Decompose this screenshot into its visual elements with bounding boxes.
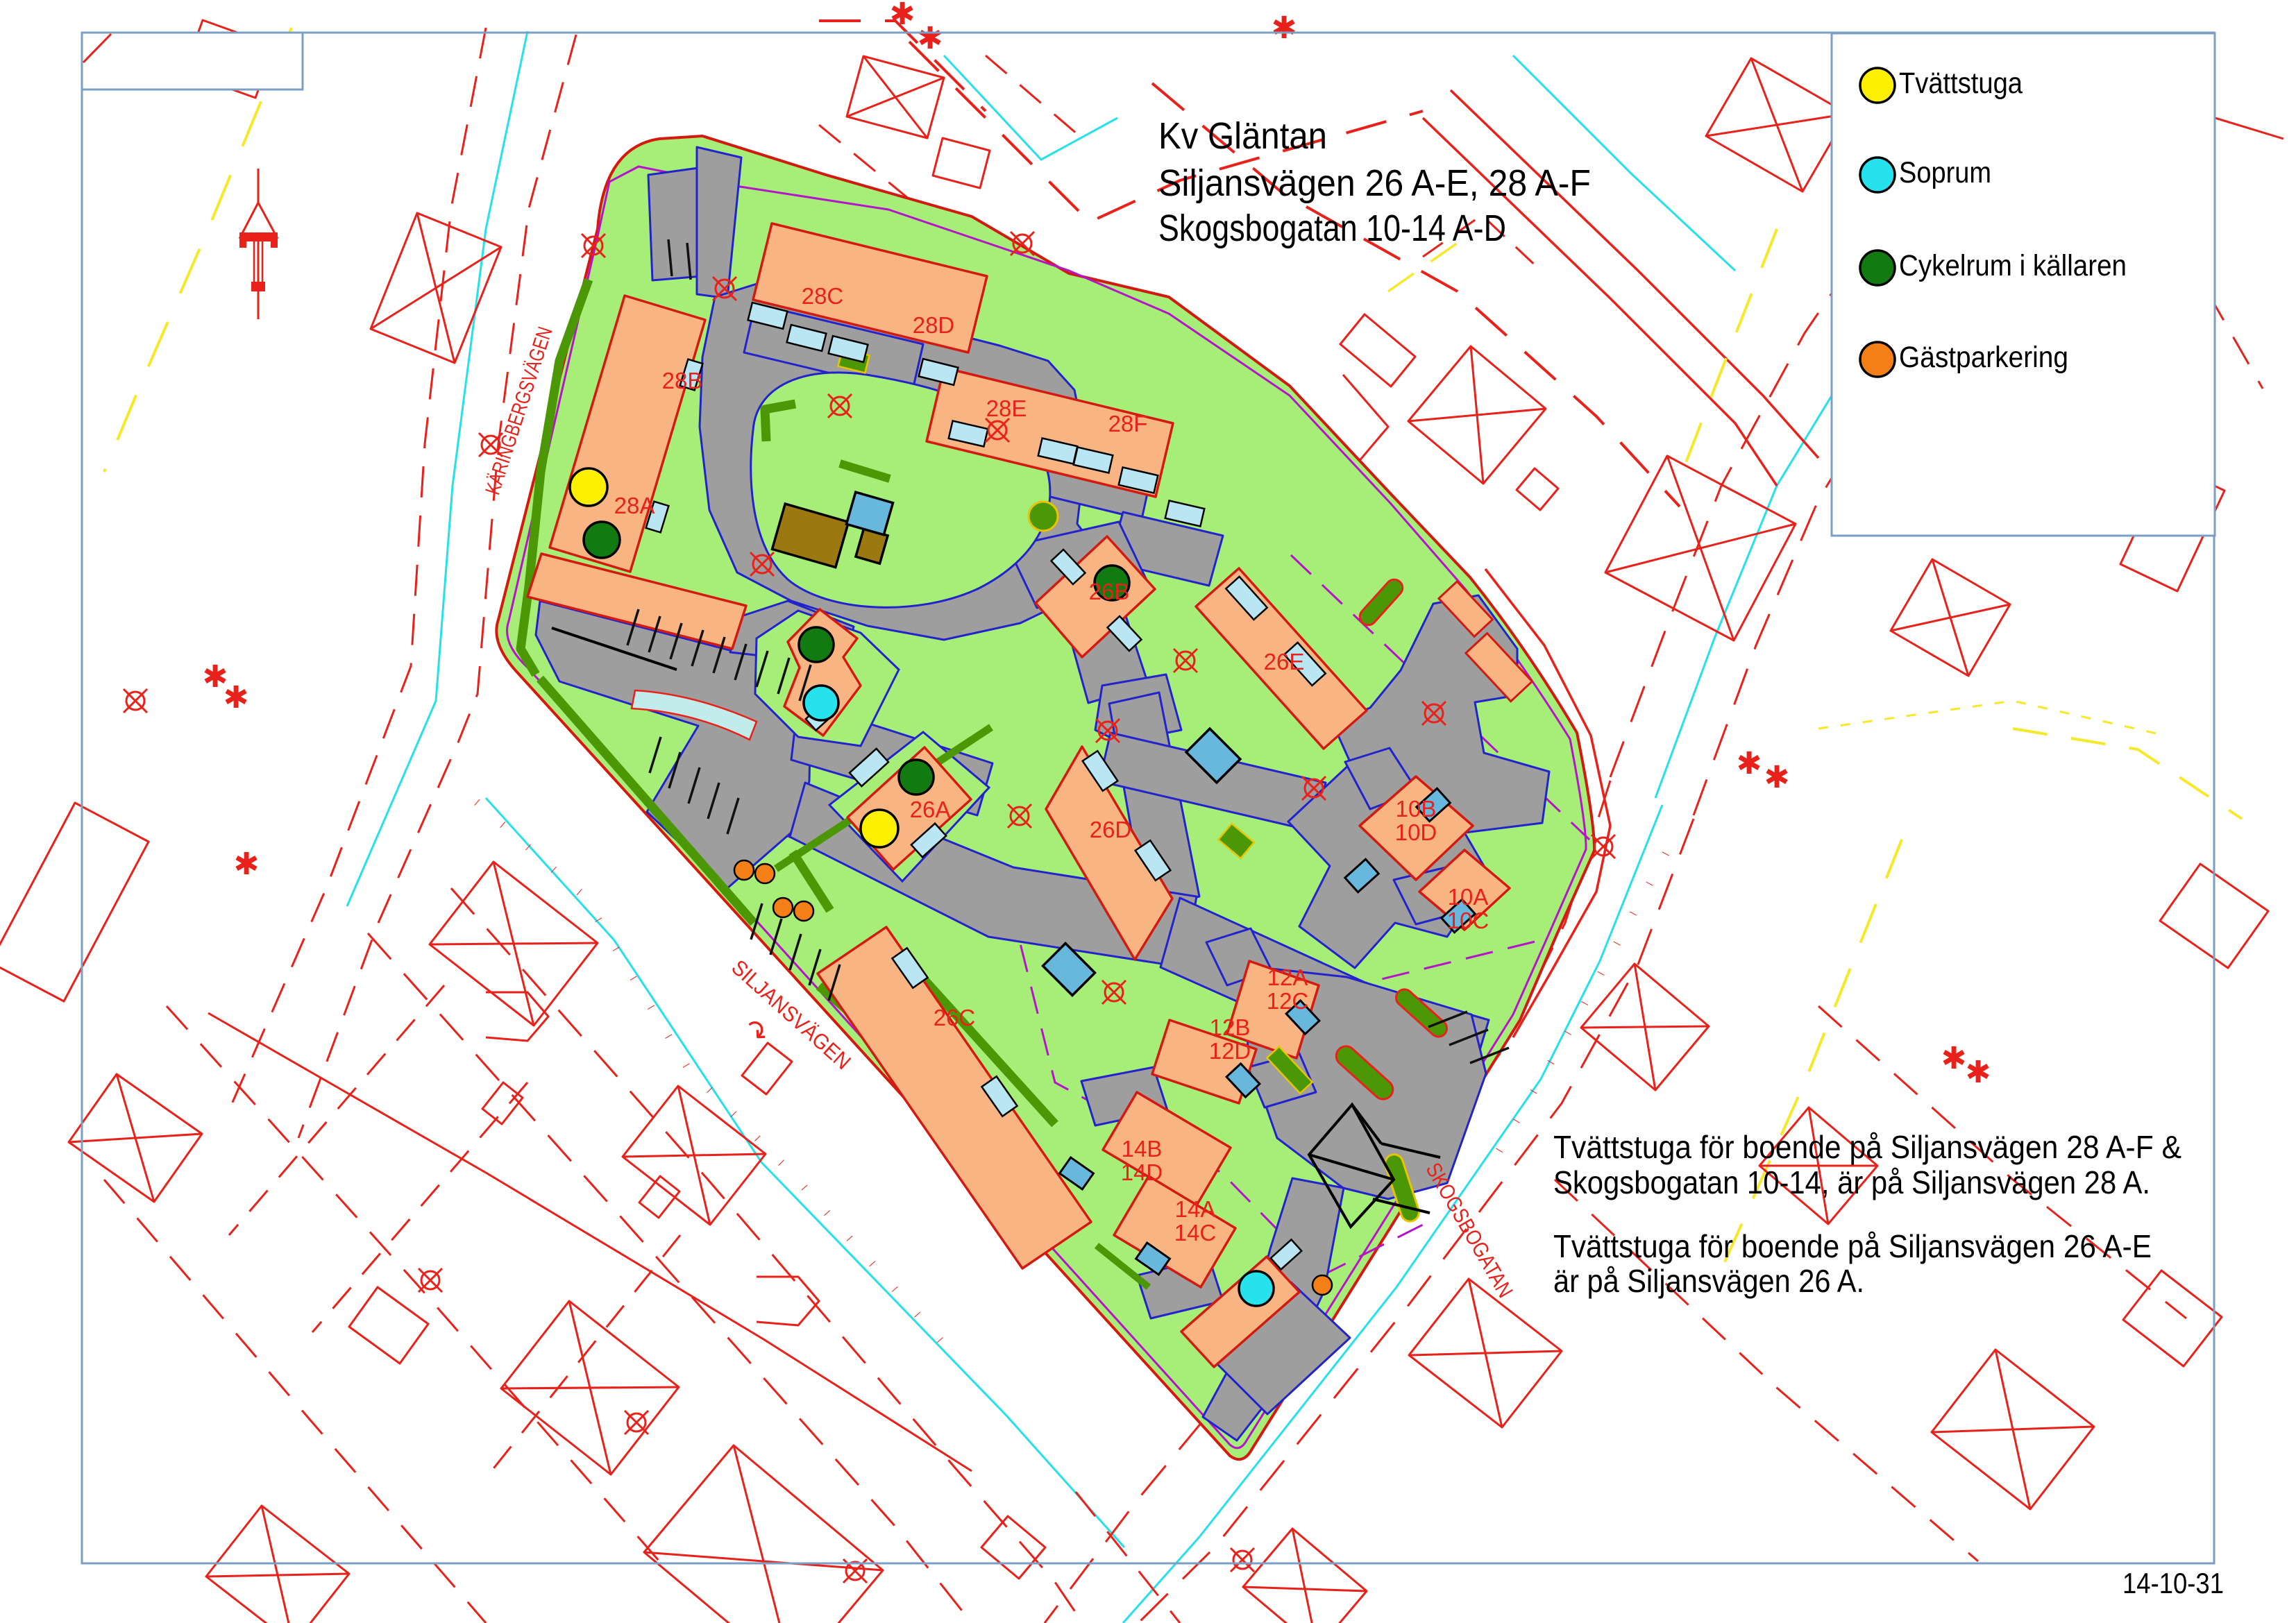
svg-text:14B: 14B (1122, 1136, 1163, 1162)
svg-text:✱: ✱ (1272, 11, 1297, 45)
svg-text:26C: 26C (934, 1005, 976, 1030)
svg-text:12B: 12B (1210, 1014, 1251, 1040)
svg-text:14D: 14D (1121, 1159, 1163, 1185)
svg-text:28A: 28A (614, 493, 655, 518)
svg-text:14-10-31: 14-10-31 (2122, 1567, 2224, 1599)
svg-text:✱: ✱ (1941, 1042, 1967, 1076)
svg-text:✱: ✱ (234, 847, 260, 881)
svg-text:Tvättstuga för boende på Silja: Tvättstuga för boende på Siljansvägen 28… (1553, 1129, 2181, 1165)
svg-text:14C: 14C (1174, 1220, 1217, 1246)
svg-text:26E: 26E (1264, 649, 1305, 674)
svg-text:Skogsbogatan 10-14 A-D: Skogsbogatan 10-14 A-D (1158, 207, 1506, 249)
svg-text:28E: 28E (986, 396, 1027, 421)
svg-text:26D: 26D (1090, 817, 1132, 842)
svg-text:28F: 28F (1108, 411, 1148, 436)
svg-text:10C: 10C (1447, 908, 1489, 933)
svg-text:✱: ✱ (223, 681, 249, 715)
svg-text:10A: 10A (1448, 884, 1489, 910)
svg-text:Siljansvägen 26 A-E, 28 A-F: Siljansvägen 26 A-E, 28 A-F (1158, 162, 1591, 204)
svg-text:Tvättstuga: Tvättstuga (1899, 67, 2023, 100)
svg-text:12D: 12D (1209, 1038, 1251, 1064)
svg-text:✱: ✱ (1737, 747, 1762, 781)
svg-text:26A: 26A (910, 797, 951, 822)
svg-text:Gästparkering: Gästparkering (1899, 341, 2068, 374)
svg-text:Skogsbogatan 10-14, är på Silj: Skogsbogatan 10-14, är på Siljansvägen 2… (1553, 1164, 2150, 1200)
svg-text:10D: 10D (1395, 819, 1437, 845)
svg-text:28B: 28B (662, 368, 703, 393)
svg-text:12C: 12C (1267, 988, 1309, 1014)
svg-text:✱: ✱ (890, 0, 915, 31)
svg-text:Cykelrum i källaren: Cykelrum i källaren (1899, 249, 2127, 282)
svg-text:Kv Gläntan: Kv Gläntan (1158, 115, 1327, 157)
svg-text:är på Siljansvägen 26 A.: är på Siljansvägen 26 A. (1553, 1263, 1864, 1299)
svg-text:✱: ✱ (918, 22, 943, 56)
svg-text:Tvättstuga för boende på Silja: Tvättstuga för boende på Siljansvägen 26… (1553, 1228, 2152, 1264)
svg-text:✱: ✱ (1966, 1055, 1991, 1089)
svg-text:28D: 28D (913, 312, 955, 338)
svg-text:Soprum: Soprum (1899, 156, 1991, 189)
svg-text:26B: 26B (1089, 579, 1130, 604)
svg-text:14A: 14A (1175, 1196, 1216, 1222)
svg-text:10B: 10B (1396, 796, 1437, 822)
svg-text:12A: 12A (1267, 965, 1308, 990)
svg-text:✱: ✱ (1764, 760, 1790, 794)
svg-text:28C: 28C (802, 283, 844, 309)
